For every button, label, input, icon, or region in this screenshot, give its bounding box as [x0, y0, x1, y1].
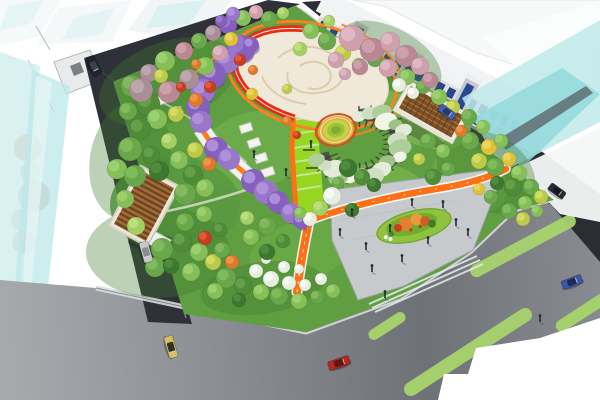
person-head	[253, 150, 256, 153]
person-head	[384, 290, 387, 293]
tree-highlight	[188, 143, 197, 152]
tree-highlight	[155, 70, 163, 78]
tree-highlight	[532, 206, 539, 213]
tree-highlight	[295, 208, 302, 215]
tree-highlight	[517, 213, 525, 221]
tree-highlight	[294, 43, 302, 51]
tree-highlight	[324, 16, 331, 23]
tree-highlight	[126, 167, 138, 179]
tree-highlight	[400, 70, 409, 79]
tree-highlight	[216, 16, 223, 23]
tree-highlight	[340, 160, 350, 170]
tree-highlight	[295, 265, 301, 271]
tree-highlight	[164, 259, 173, 268]
tree-highlight	[143, 147, 153, 157]
wisteria-highlight	[192, 113, 203, 124]
tree-highlight	[519, 197, 527, 205]
tree-highlight	[482, 140, 491, 149]
tree-highlight	[149, 111, 160, 122]
tree-highlight	[185, 167, 196, 178]
tree-highlight	[208, 284, 217, 293]
tree-highlight	[254, 285, 263, 294]
tree-highlight	[278, 8, 285, 15]
tree-highlight	[485, 191, 493, 199]
tree-highlight	[495, 135, 503, 143]
tree-highlight	[205, 82, 212, 89]
tree-highlight	[157, 53, 168, 64]
person-head	[411, 198, 414, 201]
tree-highlight	[225, 33, 233, 41]
park-rendering	[0, 0, 600, 400]
tree-highlight	[249, 66, 255, 72]
tree-highlight	[535, 191, 543, 199]
wisteria-highlight	[269, 193, 280, 204]
tree-highlight	[503, 153, 511, 161]
tree-highlight	[235, 278, 245, 288]
tree-highlight	[218, 270, 229, 281]
tree-highlight	[247, 89, 254, 96]
tree-highlight	[128, 218, 138, 228]
tree-highlight	[171, 152, 181, 162]
tree-highlight	[340, 69, 347, 76]
wisteria-highlight	[206, 139, 218, 151]
tree-highlight	[214, 224, 222, 232]
tree-highlight	[264, 272, 273, 281]
tree-highlight	[491, 177, 499, 185]
tree-highlight	[117, 191, 127, 201]
tree-highlight	[241, 212, 249, 220]
tree-highlight	[304, 24, 313, 33]
tree-highlight	[426, 170, 435, 179]
tree-highlight	[283, 277, 291, 285]
person-head	[427, 236, 430, 239]
tree-highlight	[382, 34, 393, 45]
tree-highlight	[324, 188, 334, 198]
tree-highlight	[250, 6, 258, 14]
tree-highlight	[174, 234, 185, 245]
person-head	[371, 264, 374, 267]
tree-highlight	[197, 207, 206, 216]
wisteria-highlight	[243, 171, 255, 183]
person-head	[401, 254, 404, 257]
tree-highlight	[319, 33, 329, 43]
tree-highlight	[487, 159, 497, 169]
tree-highlight	[456, 126, 463, 133]
tree-highlight	[408, 88, 415, 95]
tree-highlight	[192, 60, 198, 66]
tree-highlight	[300, 280, 307, 287]
person-head	[285, 168, 288, 171]
tree-highlight	[206, 255, 215, 264]
tree-highlight	[524, 180, 533, 189]
tree-highlight	[311, 291, 319, 299]
tree-highlight	[169, 107, 178, 116]
tree-highlight	[176, 43, 186, 53]
person-head	[351, 208, 354, 211]
wisteria-highlight	[245, 39, 253, 47]
tree-highlight	[512, 166, 521, 175]
tree-highlight	[292, 294, 301, 303]
tree-highlight	[353, 60, 362, 69]
tree-highlight	[191, 244, 201, 254]
tree-highlight	[259, 218, 269, 228]
tree-highlight	[190, 94, 198, 102]
tree-highlight	[250, 265, 258, 273]
person-head	[442, 200, 445, 203]
tree-highlight	[294, 132, 298, 136]
tree-highlight	[131, 120, 143, 132]
tree-highlight	[192, 34, 201, 43]
tree-highlight	[462, 110, 471, 119]
tree-highlight	[477, 121, 485, 129]
tree-highlight	[176, 185, 188, 197]
aerial-park-scene	[0, 0, 600, 400]
tree-highlight	[151, 163, 162, 174]
tree-highlight	[160, 83, 172, 95]
tree-highlight	[153, 240, 165, 252]
wisteria-highlight	[256, 182, 268, 194]
tree-highlight	[199, 232, 207, 240]
tree-highlight	[355, 170, 364, 179]
tree-highlight	[423, 73, 432, 82]
tree-highlight	[120, 103, 130, 113]
tree-highlight	[244, 230, 253, 239]
tree-highlight	[283, 117, 289, 123]
tree-highlight	[442, 163, 450, 171]
person-head	[365, 242, 368, 245]
tree-highlight	[329, 53, 338, 62]
tree-highlight	[203, 158, 211, 166]
tree-highlight	[177, 83, 183, 89]
tree-highlight	[215, 243, 224, 252]
tree-highlight	[271, 288, 281, 298]
tree-highlight	[380, 60, 390, 70]
tree-highlight	[120, 139, 133, 152]
tree-highlight	[502, 204, 511, 213]
tree-highlight	[131, 80, 144, 93]
tree-highlight	[162, 134, 171, 143]
tree-highlight	[414, 154, 421, 161]
tree-highlight	[432, 90, 441, 99]
wisteria-highlight	[283, 205, 293, 215]
tree-highlight	[227, 8, 235, 16]
tree-highlight	[412, 58, 422, 68]
tree-highlight	[183, 264, 193, 274]
wisteria-highlight	[220, 150, 231, 161]
tree-highlight	[474, 184, 481, 191]
tree-highlight	[233, 294, 241, 302]
person-head	[310, 140, 313, 143]
tree-highlight	[213, 46, 222, 55]
tree-highlight	[333, 178, 340, 185]
tree-highlight	[235, 55, 242, 62]
tree-highlight	[362, 40, 375, 53]
tree-highlight	[260, 245, 269, 254]
tree-highlight	[505, 179, 515, 189]
person-head	[539, 314, 542, 317]
tree-highlight	[279, 262, 286, 269]
person-head	[389, 224, 392, 227]
tree-highlight	[226, 256, 234, 264]
tree-highlight	[437, 145, 445, 153]
tree-highlight	[283, 85, 289, 91]
tree-highlight	[177, 214, 187, 224]
tree-highlight	[262, 12, 271, 21]
tree-highlight	[206, 26, 215, 35]
person-head	[467, 228, 470, 231]
tree-highlight	[197, 180, 207, 190]
tree-highlight	[341, 27, 355, 41]
person-head	[455, 218, 458, 221]
tree-highlight	[109, 161, 120, 172]
tree-highlight	[393, 79, 401, 87]
tree-highlight	[141, 65, 151, 75]
tree-highlight	[472, 154, 481, 163]
tree-highlight	[277, 235, 285, 243]
tree-highlight	[327, 285, 335, 293]
tree-highlight	[421, 134, 430, 143]
tree-highlight	[181, 71, 192, 82]
tree-highlight	[368, 179, 376, 187]
person-head	[339, 228, 342, 231]
tree-highlight	[397, 47, 409, 59]
tree-highlight	[316, 274, 323, 281]
tree-highlight	[313, 201, 322, 210]
